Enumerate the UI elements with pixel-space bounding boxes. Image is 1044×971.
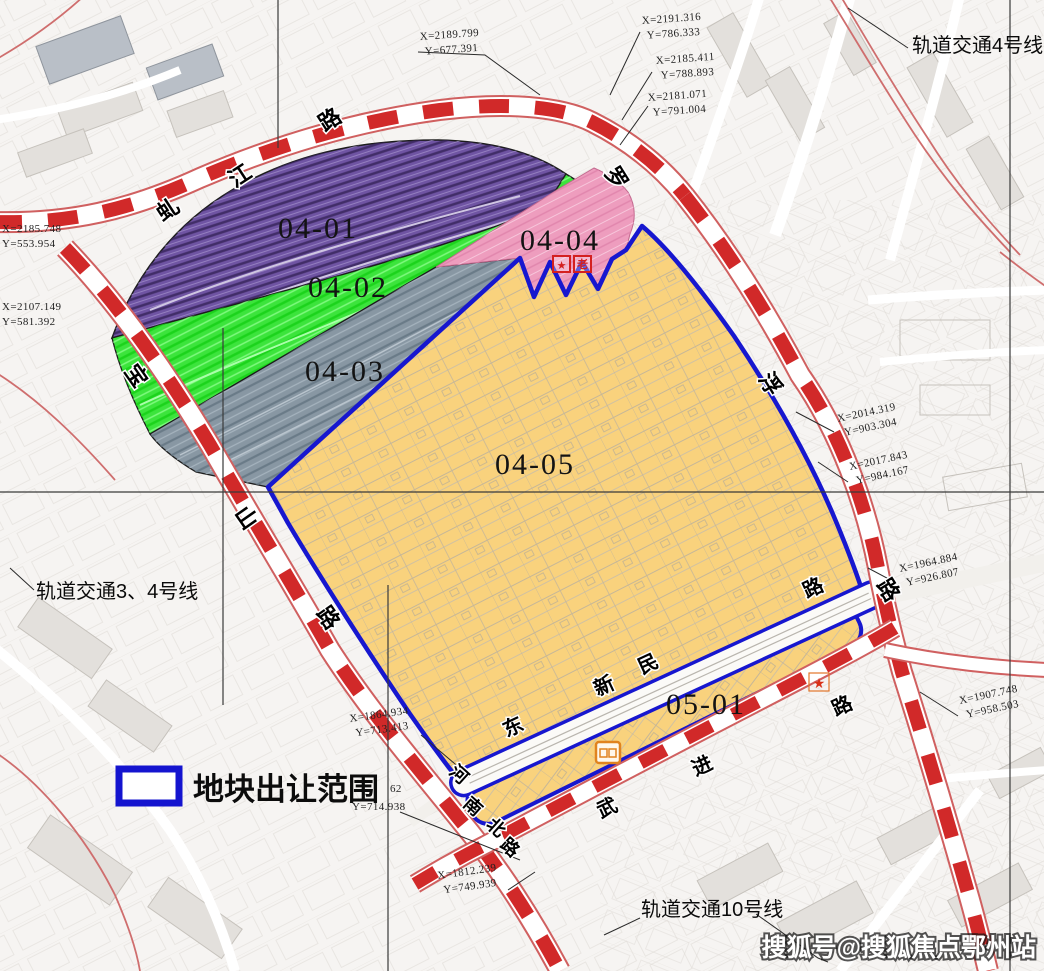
rail-line-4-label: 轨道交通4号线 bbox=[912, 34, 1043, 57]
coord-label: X=2185.748 bbox=[2, 223, 61, 235]
parcel-label-04-05: 04-05 bbox=[495, 448, 575, 481]
star-icon: ★ bbox=[813, 675, 826, 691]
coord-label: X=2107.149 bbox=[2, 301, 61, 313]
shop-icon bbox=[596, 742, 620, 763]
parcel-label-05-01: 05-01 bbox=[666, 688, 746, 721]
parcel-label-04-02: 04-02 bbox=[308, 271, 388, 304]
coord-label: Y=553.954 bbox=[2, 238, 56, 250]
rail-line-3-4-label: 轨道交通3、4号线 bbox=[36, 580, 198, 603]
legend-boundary-swatch bbox=[119, 769, 179, 803]
elder-icon: 老 bbox=[576, 257, 588, 271]
planning-map: 04-01 04-02 04-03 04-04 04-05 05-01 虬 江 … bbox=[0, 0, 1044, 971]
coord-label: 62 bbox=[390, 783, 402, 795]
rail-line-10-label: 轨道交通10号线 bbox=[641, 898, 783, 921]
elder-marker-box: 老 bbox=[574, 256, 591, 272]
parcel-label-04-01: 04-01 bbox=[278, 212, 358, 245]
star-icon: ★ bbox=[557, 260, 567, 272]
parcel-label-04-04: 04-04 bbox=[520, 224, 600, 257]
map-canvas: 04-01 04-02 04-03 04-04 04-05 05-01 虬 江 … bbox=[0, 0, 1044, 971]
legend-label: 地块出让范围 bbox=[193, 772, 379, 807]
coord-label: Y=581.392 bbox=[2, 316, 56, 328]
watermark: 搜狐号@搜狐焦点鄂州站 bbox=[762, 933, 1036, 962]
star-marker-box: ★ bbox=[553, 256, 570, 272]
legend: 地块出让范围 bbox=[119, 769, 379, 807]
parcel-label-04-03: 04-03 bbox=[305, 355, 385, 388]
